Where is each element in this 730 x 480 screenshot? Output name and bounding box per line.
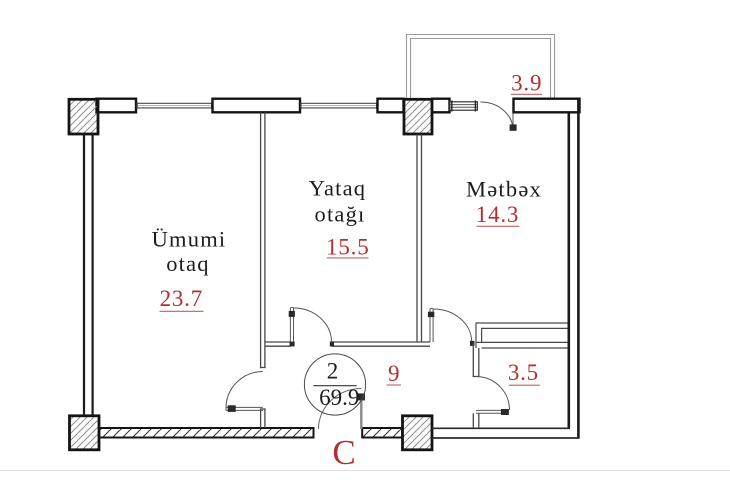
svg-text:14.3: 14.3 (476, 202, 519, 227)
svg-text:9: 9 (388, 361, 400, 386)
svg-text:3.5: 3.5 (508, 360, 539, 385)
svg-text:3.9: 3.9 (511, 71, 542, 96)
svg-text:Yataq: Yataq (309, 176, 366, 201)
svg-text:Mətbəx: Mətbəx (466, 177, 542, 202)
svg-text:Ümumi: Ümumi (152, 227, 227, 252)
svg-text:C: C (332, 433, 355, 472)
svg-text:23.7: 23.7 (160, 286, 203, 311)
svg-text:15.5: 15.5 (326, 235, 369, 260)
svg-text:2: 2 (327, 359, 339, 384)
svg-text:69.9: 69.9 (319, 385, 359, 410)
svg-text:otaq: otaq (166, 251, 210, 276)
svg-text:otağı: otağı (315, 202, 366, 227)
